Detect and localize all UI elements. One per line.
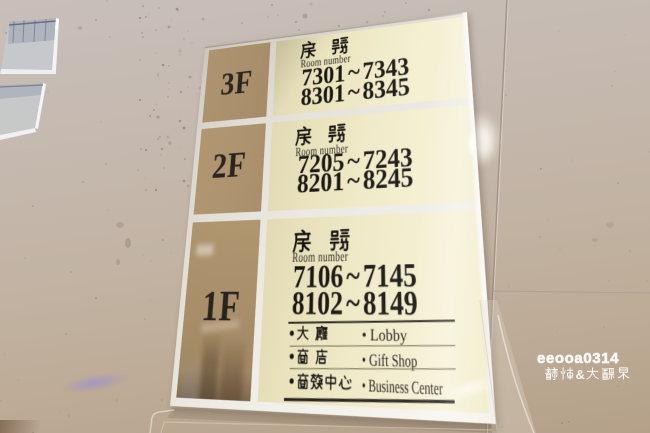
svg-text:&: & (576, 367, 585, 382)
